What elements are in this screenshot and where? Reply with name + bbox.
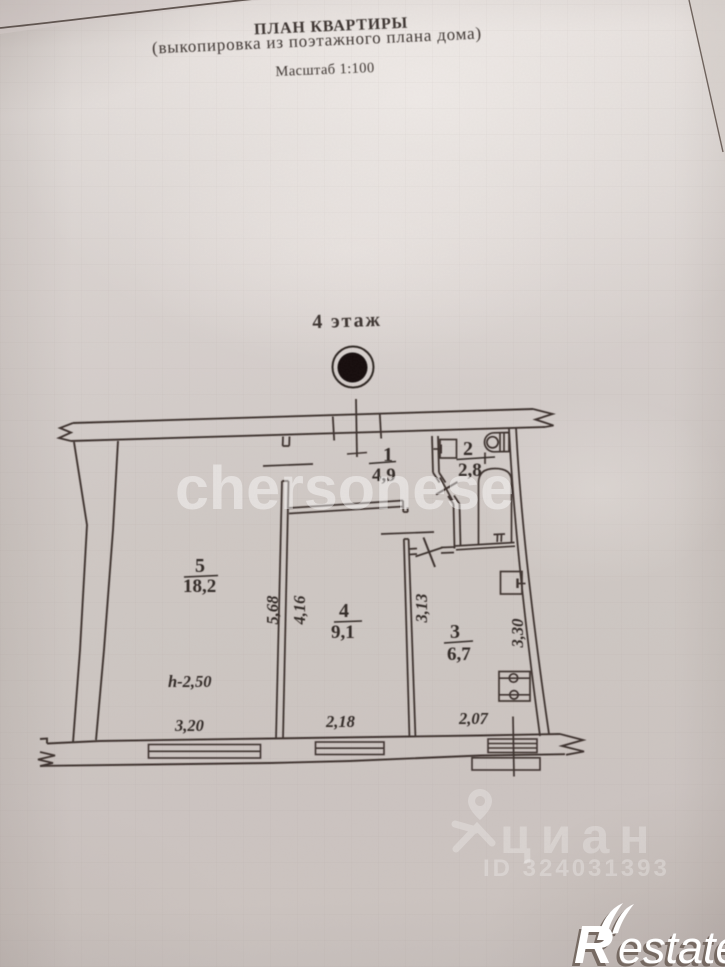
svg-text:ID 324031393: ID 324031393 [483, 855, 670, 882]
svg-text:estate: estate [618, 922, 725, 967]
svg-text:chersonese: chersonese [175, 454, 514, 522]
